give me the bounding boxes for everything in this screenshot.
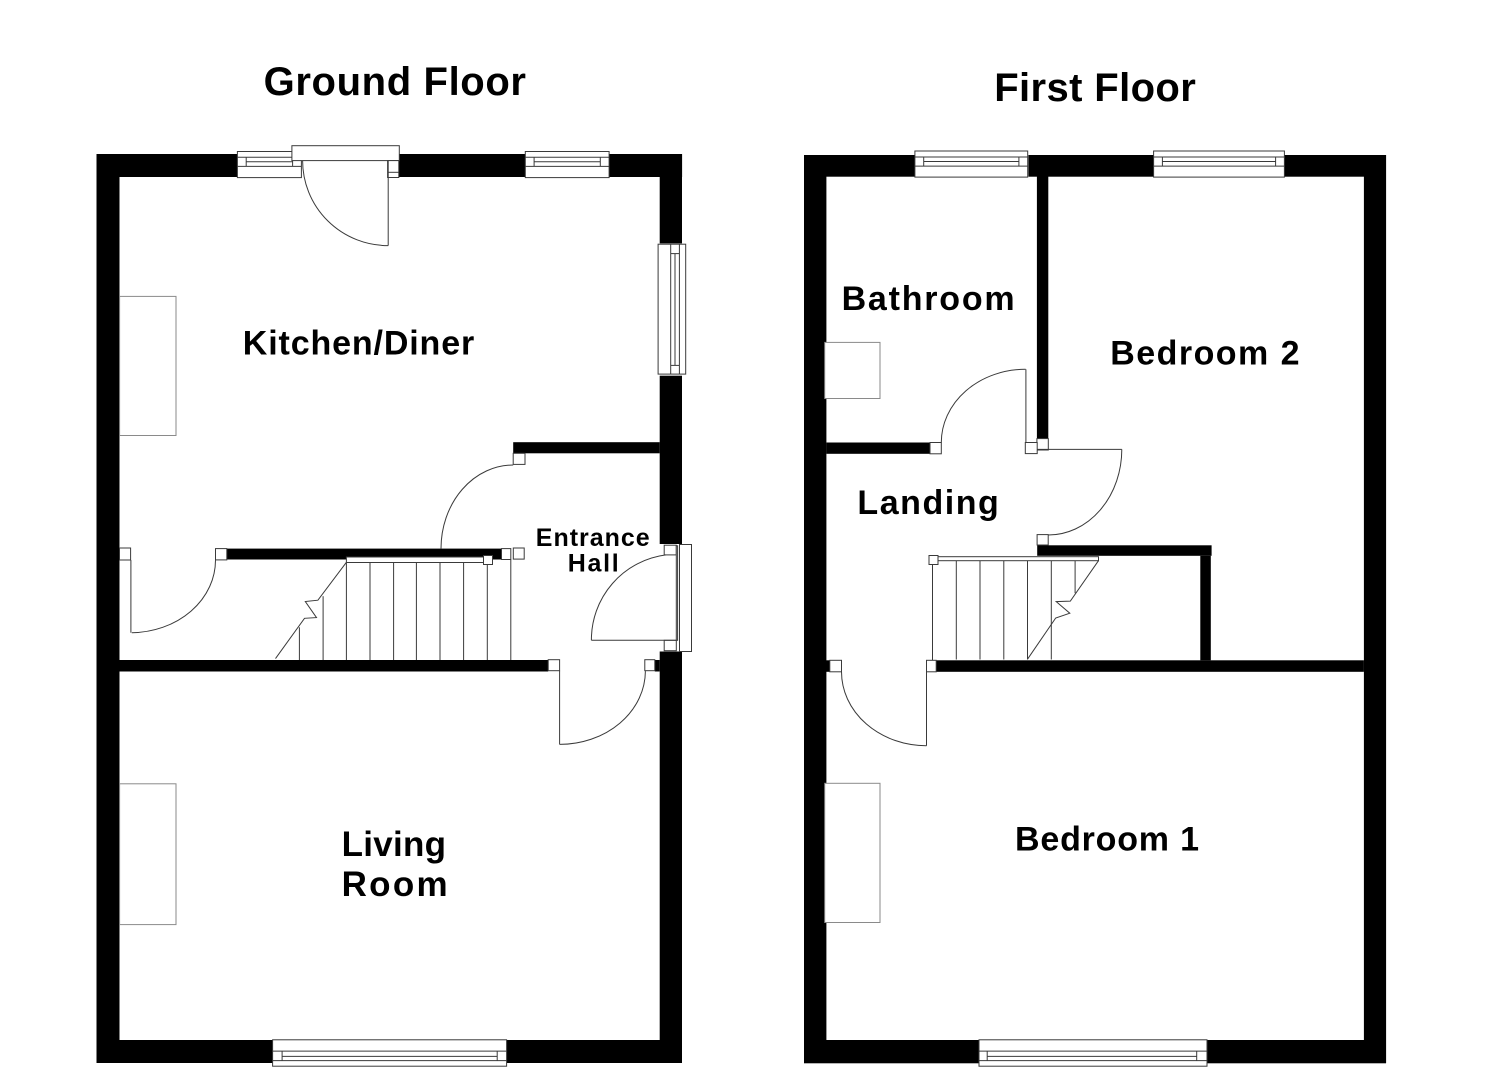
svg-text:Bedroom 1: Bedroom 1 [1015,821,1199,859]
svg-text:Kitchen/Diner: Kitchen/Diner [243,325,474,363]
svg-text:Entrance: Entrance [536,524,650,552]
svg-text:Ground Floor: Ground Floor [264,60,526,104]
svg-text:Living: Living [342,825,446,864]
svg-text:Bedroom 2: Bedroom 2 [1110,335,1299,373]
svg-text:First Floor: First Floor [994,66,1196,110]
svg-text:Room: Room [342,865,448,904]
svg-text:Bathroom: Bathroom [842,280,1015,318]
svg-text:Hall: Hall [568,550,619,578]
